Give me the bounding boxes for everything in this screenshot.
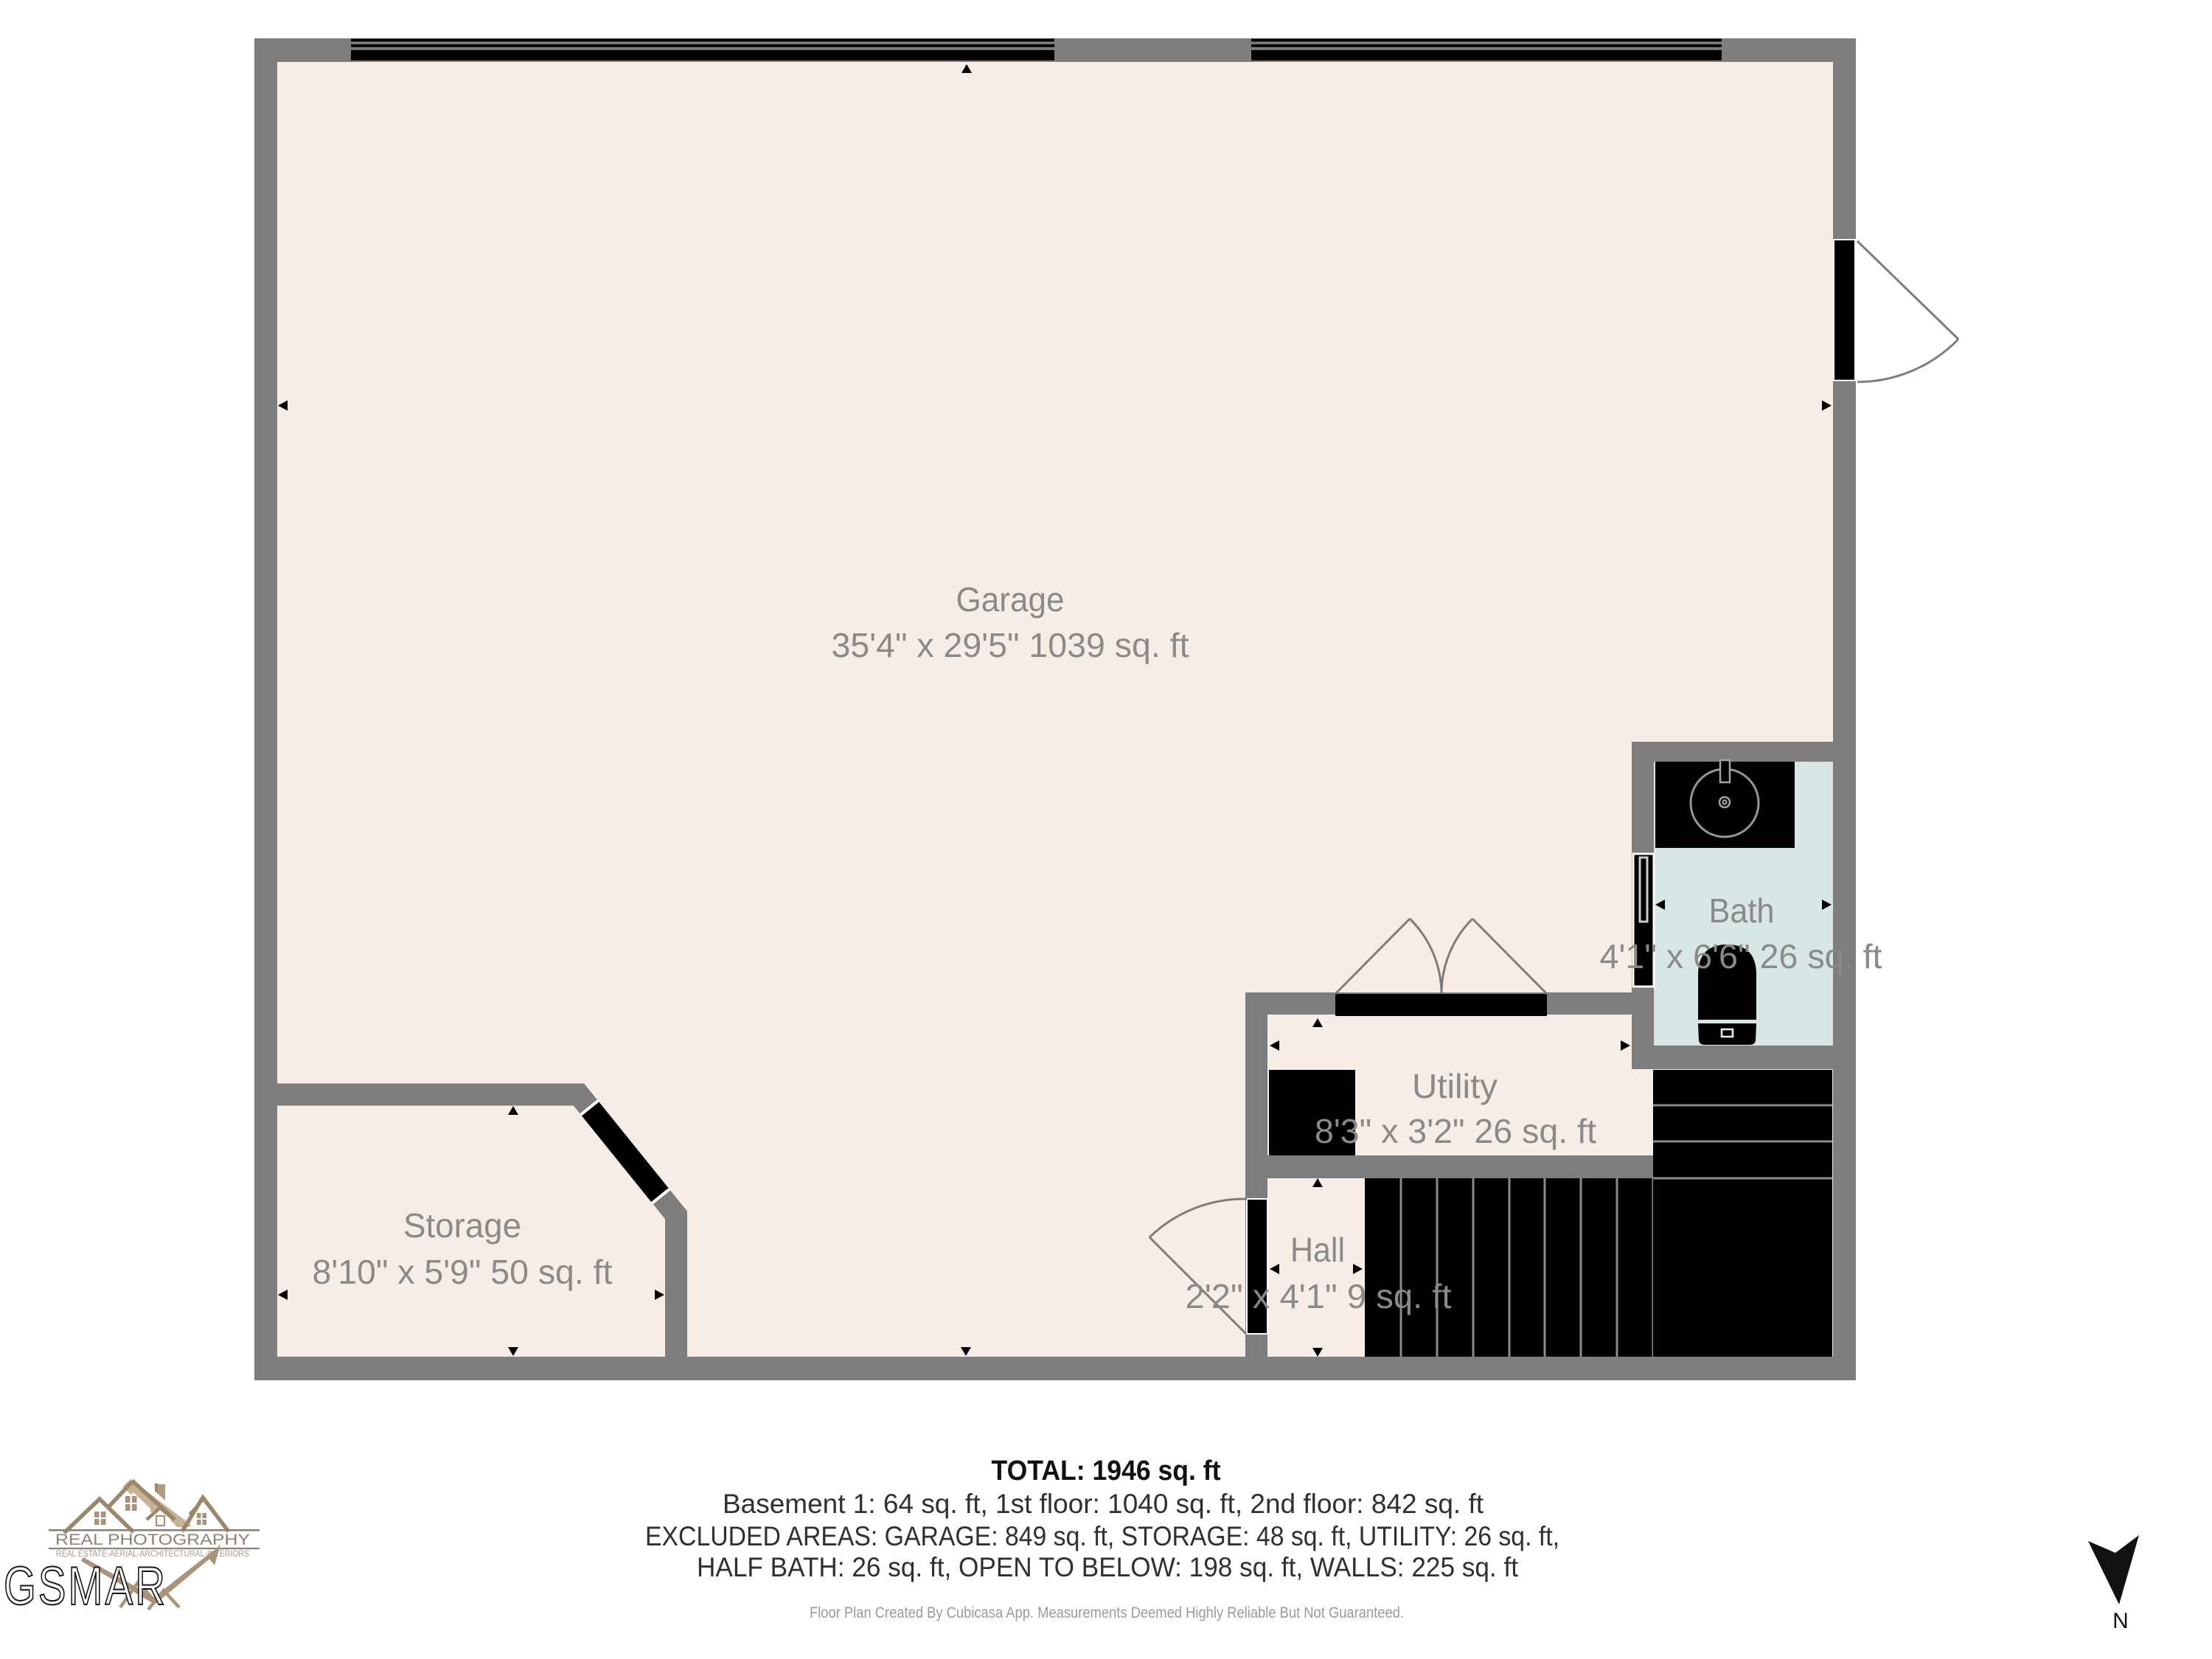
- svg-text:4'1" x 6'6" 26 sq. ft: 4'1" x 6'6" 26 sq. ft: [1600, 937, 1882, 975]
- svg-text:Basement 1: 64 sq. ft, 1st flo: Basement 1: 64 sq. ft, 1st floor: 1040 s…: [723, 1489, 1484, 1519]
- svg-text:35'4" x 29'5" 1039 sq. ft: 35'4" x 29'5" 1039 sq. ft: [832, 626, 1189, 664]
- svg-text:Bath: Bath: [1709, 891, 1775, 930]
- svg-text:Garage: Garage: [956, 580, 1065, 619]
- svg-text:Floor Plan Created By Cubicasa: Floor Plan Created By Cubicasa App. Meas…: [810, 1604, 1404, 1621]
- svg-text:GSMAR: GSMAR: [4, 1557, 167, 1616]
- svg-text:EXCLUDED AREAS: GARAGE: 849 sq: EXCLUDED AREAS: GARAGE: 849 sq. ft, STOR…: [645, 1521, 1559, 1551]
- svg-text:Hall: Hall: [1290, 1231, 1345, 1269]
- svg-text:REAL PHOTOGRAPHY: REAL PHOTOGRAPHY: [55, 1531, 250, 1548]
- svg-text:TOTAL: 1946 sq. ft: TOTAL: 1946 sq. ft: [992, 1455, 1221, 1486]
- svg-text:8'10" x 5'9" 50 sq. ft: 8'10" x 5'9" 50 sq. ft: [313, 1253, 613, 1291]
- svg-text:8'3" x 3'2" 26 sq. ft: 8'3" x 3'2" 26 sq. ft: [1315, 1112, 1596, 1150]
- svg-text:HALF BATH: 26 sq. ft, OPEN TO: HALF BATH: 26 sq. ft, OPEN TO BELOW: 198…: [697, 1552, 1519, 1582]
- svg-text:Utility: Utility: [1412, 1067, 1498, 1105]
- svg-text:N: N: [2112, 1609, 2129, 1633]
- svg-text:Storage: Storage: [403, 1206, 521, 1245]
- svg-text:2'2" x 4'1" 9 sq. ft: 2'2" x 4'1" 9 sq. ft: [1186, 1277, 1452, 1315]
